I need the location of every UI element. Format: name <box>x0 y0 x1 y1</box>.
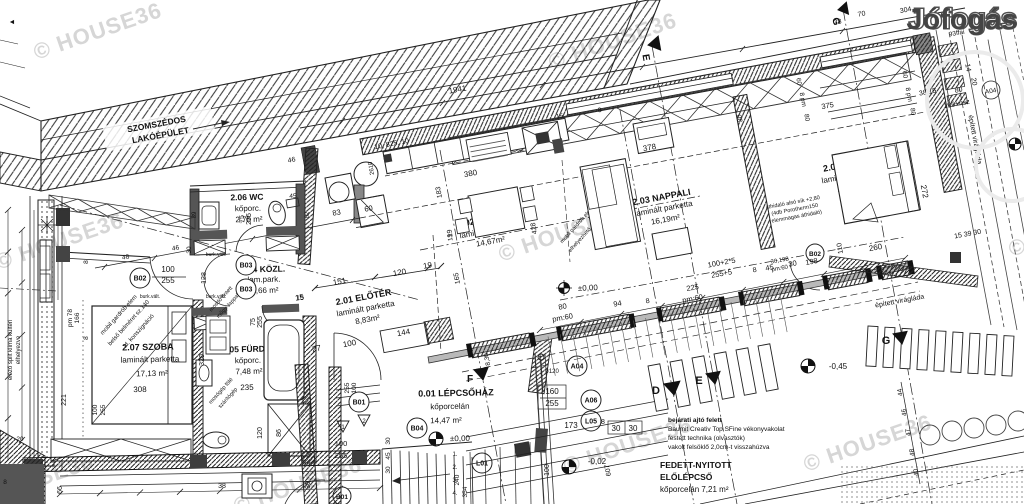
svg-text:B03: B03 <box>240 263 253 270</box>
svg-text:100: 100 <box>351 382 358 393</box>
svg-text:100: 100 <box>161 265 175 274</box>
svg-text:308: 308 <box>133 385 147 394</box>
svg-text:előző split klíma kültéri: előző split klíma kültéri <box>8 320 14 380</box>
svg-text:1.: 1. <box>452 452 457 458</box>
svg-text:82: 82 <box>305 211 311 218</box>
svg-text:kőporcelán: kőporcelán <box>430 402 469 412</box>
svg-text:14,47 m²: 14,47 m² <box>430 416 462 426</box>
svg-text:G: G <box>882 335 891 347</box>
svg-text:L01: L01 <box>476 461 488 468</box>
svg-text:4.: 4. <box>452 491 457 497</box>
svg-text:◄: ◄ <box>9 19 16 26</box>
svg-text:F: F <box>467 374 473 385</box>
svg-text:A06: A06 <box>585 398 598 405</box>
svg-text:D: D <box>652 385 660 397</box>
svg-text:B04: B04 <box>411 426 424 433</box>
svg-text:20: 20 <box>16 436 24 443</box>
svg-text:45: 45 <box>765 262 775 272</box>
svg-text:pm 78: pm 78 <box>67 309 74 327</box>
svg-text:0.01 LÉPCSŐHÁZ: 0.01 LÉPCSŐHÁZ <box>418 386 494 398</box>
svg-text:kőporc.: kőporc. <box>235 356 261 366</box>
svg-text:30: 30 <box>788 258 798 268</box>
svg-text:elhelyezve: elhelyezve <box>16 335 22 364</box>
svg-text:45: 45 <box>289 193 297 200</box>
svg-text:-0,02: -0,02 <box>588 457 607 466</box>
svg-text:100: 100 <box>92 404 99 415</box>
svg-text:30: 30 <box>385 437 392 445</box>
svg-text:7,48 m²: 7,48 m² <box>235 367 263 377</box>
svg-text:B01: B01 <box>353 400 366 407</box>
svg-text:-0,45: -0,45 <box>829 362 848 371</box>
svg-text:83: 83 <box>332 207 342 217</box>
svg-text:bejárati ajtó felett: bejárati ajtó felett <box>668 417 723 424</box>
svg-text:ø120: ø120 <box>545 369 559 375</box>
svg-text:8: 8 <box>3 479 7 486</box>
svg-text:burk.vált.: burk.vált. <box>140 294 160 300</box>
svg-text:kőporcelán 7,21 m²: kőporcelán 7,21 m² <box>660 485 729 494</box>
svg-text:3.: 3. <box>452 478 457 484</box>
svg-text:17,13 m²: 17,13 m² <box>136 369 168 379</box>
svg-text:235: 235 <box>240 383 254 392</box>
svg-text:B02: B02 <box>134 276 147 283</box>
svg-text:80: 80 <box>558 301 568 311</box>
svg-text:2.: 2. <box>452 465 457 471</box>
svg-text:ELŐLÉPCSŐ: ELŐLÉPCSŐ <box>660 471 713 482</box>
svg-text:46: 46 <box>287 156 296 164</box>
svg-text:±0,00: ±0,00 <box>578 283 599 293</box>
svg-text:FEDETT-NYITOTT: FEDETT-NYITOTT <box>660 460 732 470</box>
svg-text:38: 38 <box>218 483 226 490</box>
svg-text:30: 30 <box>629 424 638 433</box>
svg-text:vakolt felsöklő 2,0cm-t vissza: vakolt felsöklő 2,0cm-t visszahúzva <box>668 444 770 451</box>
svg-text:festett technika (olvasztók): festett technika (olvasztók) <box>668 435 745 442</box>
svg-text:Baumit Creativ Top SFine vékon: Baumit Creativ Top SFine vékonyvakolat <box>668 426 785 433</box>
svg-text:B03: B03 <box>240 287 253 294</box>
svg-text:kőporc.: kőporc. <box>235 204 261 214</box>
svg-text:221: 221 <box>61 394 68 406</box>
svg-text:173: 173 <box>564 421 578 430</box>
svg-text:255: 255 <box>257 316 264 328</box>
svg-text:86: 86 <box>276 429 283 437</box>
svg-text:66: 66 <box>57 486 64 494</box>
svg-text:30: 30 <box>736 114 744 123</box>
svg-text:2.06 WC: 2.06 WC <box>230 192 263 203</box>
svg-text:70: 70 <box>857 10 866 18</box>
svg-text:A04: A04 <box>571 364 584 371</box>
svg-text:354: 354 <box>462 486 469 497</box>
svg-text:255: 255 <box>344 382 351 393</box>
svg-text:120: 120 <box>257 427 264 439</box>
svg-text:75: 75 <box>239 215 246 223</box>
svg-text:255: 255 <box>246 213 253 225</box>
svg-text:75: 75 <box>250 318 257 326</box>
svg-text:166: 166 <box>74 312 81 323</box>
svg-text:30: 30 <box>186 246 193 254</box>
svg-text:laminált parketta: laminált parketta <box>121 354 180 364</box>
svg-text:320: 320 <box>199 354 206 366</box>
svg-text:Jófogás: Jófogás <box>906 4 1017 36</box>
svg-text:8: 8 <box>83 336 90 340</box>
svg-text:94: 94 <box>613 298 623 308</box>
svg-text:E: E <box>695 375 702 387</box>
svg-text:L05: L05 <box>585 419 597 426</box>
svg-text:30: 30 <box>612 424 621 433</box>
svg-text:8: 8 <box>83 260 90 264</box>
svg-text:255: 255 <box>100 404 107 415</box>
svg-text:±0,00: ±0,00 <box>450 434 471 443</box>
svg-text:60: 60 <box>364 203 374 213</box>
